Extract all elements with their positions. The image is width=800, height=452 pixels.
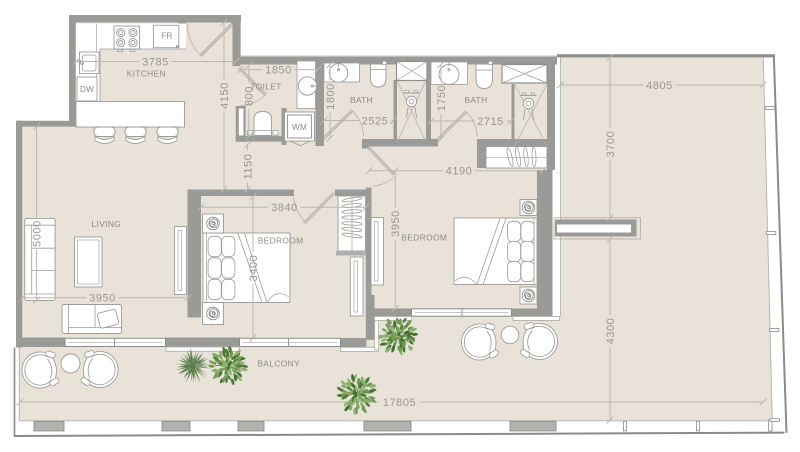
svg-text:BEDROOM: BEDROOM (258, 235, 304, 245)
svg-text:1850: 1850 (265, 65, 292, 77)
svg-text:WM: WM (292, 123, 307, 132)
svg-text:KITCHEN: KITCHEN (127, 69, 166, 79)
svg-text:2715: 2715 (477, 116, 504, 128)
svg-text:1150: 1150 (242, 154, 254, 180)
svg-text:3950: 3950 (390, 210, 402, 237)
svg-text:BALCONY: BALCONY (257, 359, 300, 369)
svg-text:BEDROOM: BEDROOM (401, 232, 447, 242)
svg-text:4300: 4300 (605, 318, 617, 345)
svg-text:5000: 5000 (31, 220, 43, 247)
svg-text:3785: 3785 (142, 56, 169, 68)
svg-text:4150: 4150 (219, 82, 231, 109)
svg-text:BATH: BATH (350, 95, 373, 105)
svg-text:TOILET: TOILET (250, 81, 281, 91)
svg-text:FR: FR (161, 32, 173, 41)
svg-text:1750: 1750 (436, 85, 448, 112)
svg-text:3950: 3950 (89, 293, 116, 305)
svg-text:17805: 17805 (383, 397, 416, 409)
svg-text:3840: 3840 (271, 202, 298, 214)
svg-text:2525: 2525 (362, 115, 389, 127)
svg-text:LIVING: LIVING (92, 219, 122, 229)
svg-text:1800: 1800 (325, 83, 337, 110)
svg-text:BATH: BATH (464, 95, 487, 105)
svg-text:DW: DW (80, 85, 94, 94)
svg-text:3400: 3400 (248, 255, 260, 282)
svg-text:4805: 4805 (646, 80, 673, 92)
svg-text:4190: 4190 (446, 166, 473, 178)
svg-text:3700: 3700 (605, 131, 617, 158)
